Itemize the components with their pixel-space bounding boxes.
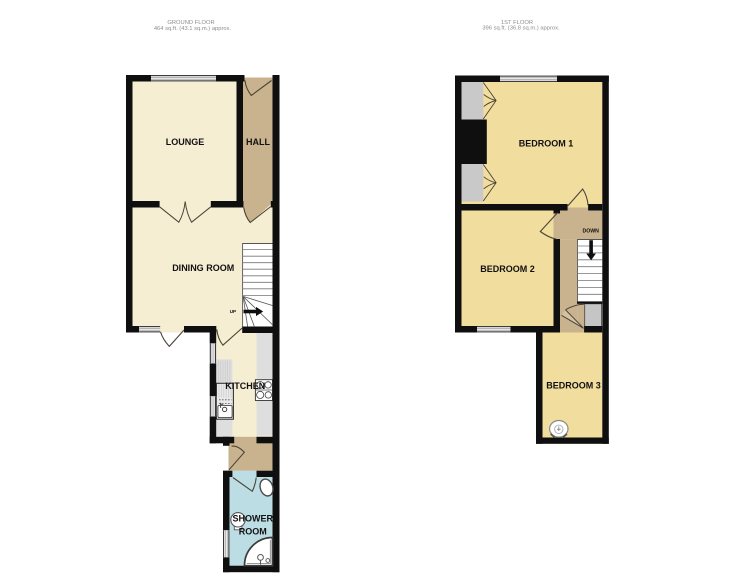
svg-text:SHOWER: SHOWER	[233, 514, 274, 524]
svg-text:396 sq.ft. (36.8 sq.m.) approx: 396 sq.ft. (36.8 sq.m.) approx.	[482, 25, 560, 31]
svg-text:ROOM: ROOM	[239, 527, 267, 537]
svg-text:BEDROOM 3: BEDROOM 3	[546, 381, 601, 391]
svg-text:HALL: HALL	[246, 137, 270, 147]
svg-text:UP: UP	[230, 309, 236, 314]
svg-text:DOWN: DOWN	[582, 229, 599, 235]
svg-text:464 sq.ft. (43.1 sq.m.) approx: 464 sq.ft. (43.1 sq.m.) approx.	[154, 26, 232, 32]
svg-text:KITCHEN: KITCHEN	[225, 381, 265, 391]
svg-text:DINING ROOM: DINING ROOM	[172, 263, 234, 273]
svg-text:BEDROOM 2: BEDROOM 2	[480, 264, 535, 274]
svg-text:LOUNGE: LOUNGE	[166, 137, 205, 147]
svg-text:BEDROOM 1: BEDROOM 1	[519, 139, 574, 149]
